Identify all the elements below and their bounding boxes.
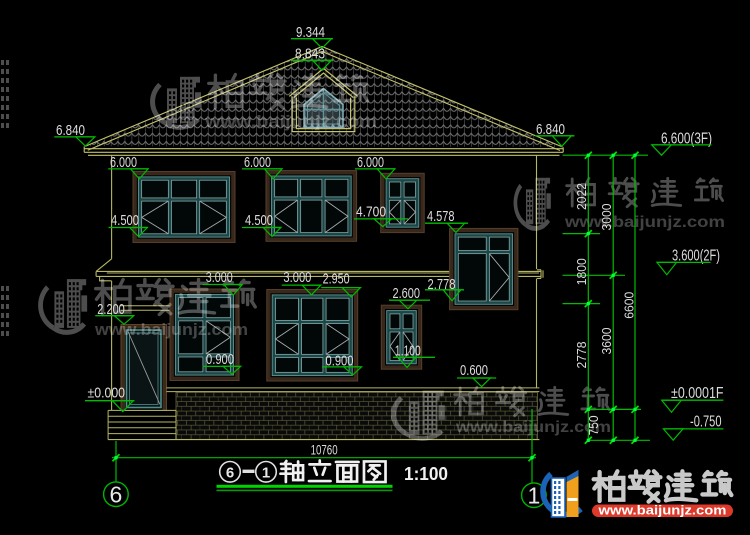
svg-text:3.000: 3.000 bbox=[206, 269, 233, 286]
svg-text:6: 6 bbox=[226, 464, 234, 481]
svg-text:www.baijunjz.com: www.baijunjz.com bbox=[94, 320, 248, 339]
svg-text:0.600: 0.600 bbox=[460, 362, 488, 379]
svg-text:4.500: 4.500 bbox=[111, 212, 139, 229]
svg-text:-0.750: -0.750 bbox=[690, 413, 722, 430]
svg-text:1:100: 1:100 bbox=[404, 464, 448, 484]
svg-text:0.900: 0.900 bbox=[206, 351, 234, 368]
svg-text:3600: 3600 bbox=[599, 328, 614, 355]
svg-text:10760: 10760 bbox=[311, 441, 338, 457]
svg-text:3000: 3000 bbox=[599, 204, 614, 231]
svg-text:4.500: 4.500 bbox=[245, 212, 273, 229]
svg-text:2778: 2778 bbox=[574, 342, 589, 369]
svg-text:750: 750 bbox=[586, 415, 601, 435]
svg-text:4.700: 4.700 bbox=[356, 204, 386, 221]
svg-text:2022: 2022 bbox=[574, 183, 589, 210]
svg-text:6600: 6600 bbox=[622, 292, 637, 319]
svg-text:3.000: 3.000 bbox=[283, 269, 311, 286]
svg-text:www.baijunjz.com: www.baijunjz.com bbox=[597, 503, 726, 517]
svg-text:2.600: 2.600 bbox=[393, 285, 421, 302]
svg-text:1: 1 bbox=[528, 483, 541, 509]
svg-text:±0.0001F: ±0.0001F bbox=[671, 385, 724, 402]
svg-text:1800: 1800 bbox=[574, 258, 589, 285]
svg-text:2.950: 2.950 bbox=[323, 270, 350, 287]
svg-text:1: 1 bbox=[262, 464, 270, 481]
svg-text:www.baijunjz.com: www.baijunjz.com bbox=[204, 112, 377, 131]
svg-text:6: 6 bbox=[110, 482, 123, 508]
svg-text:±0.000: ±0.000 bbox=[88, 385, 126, 402]
